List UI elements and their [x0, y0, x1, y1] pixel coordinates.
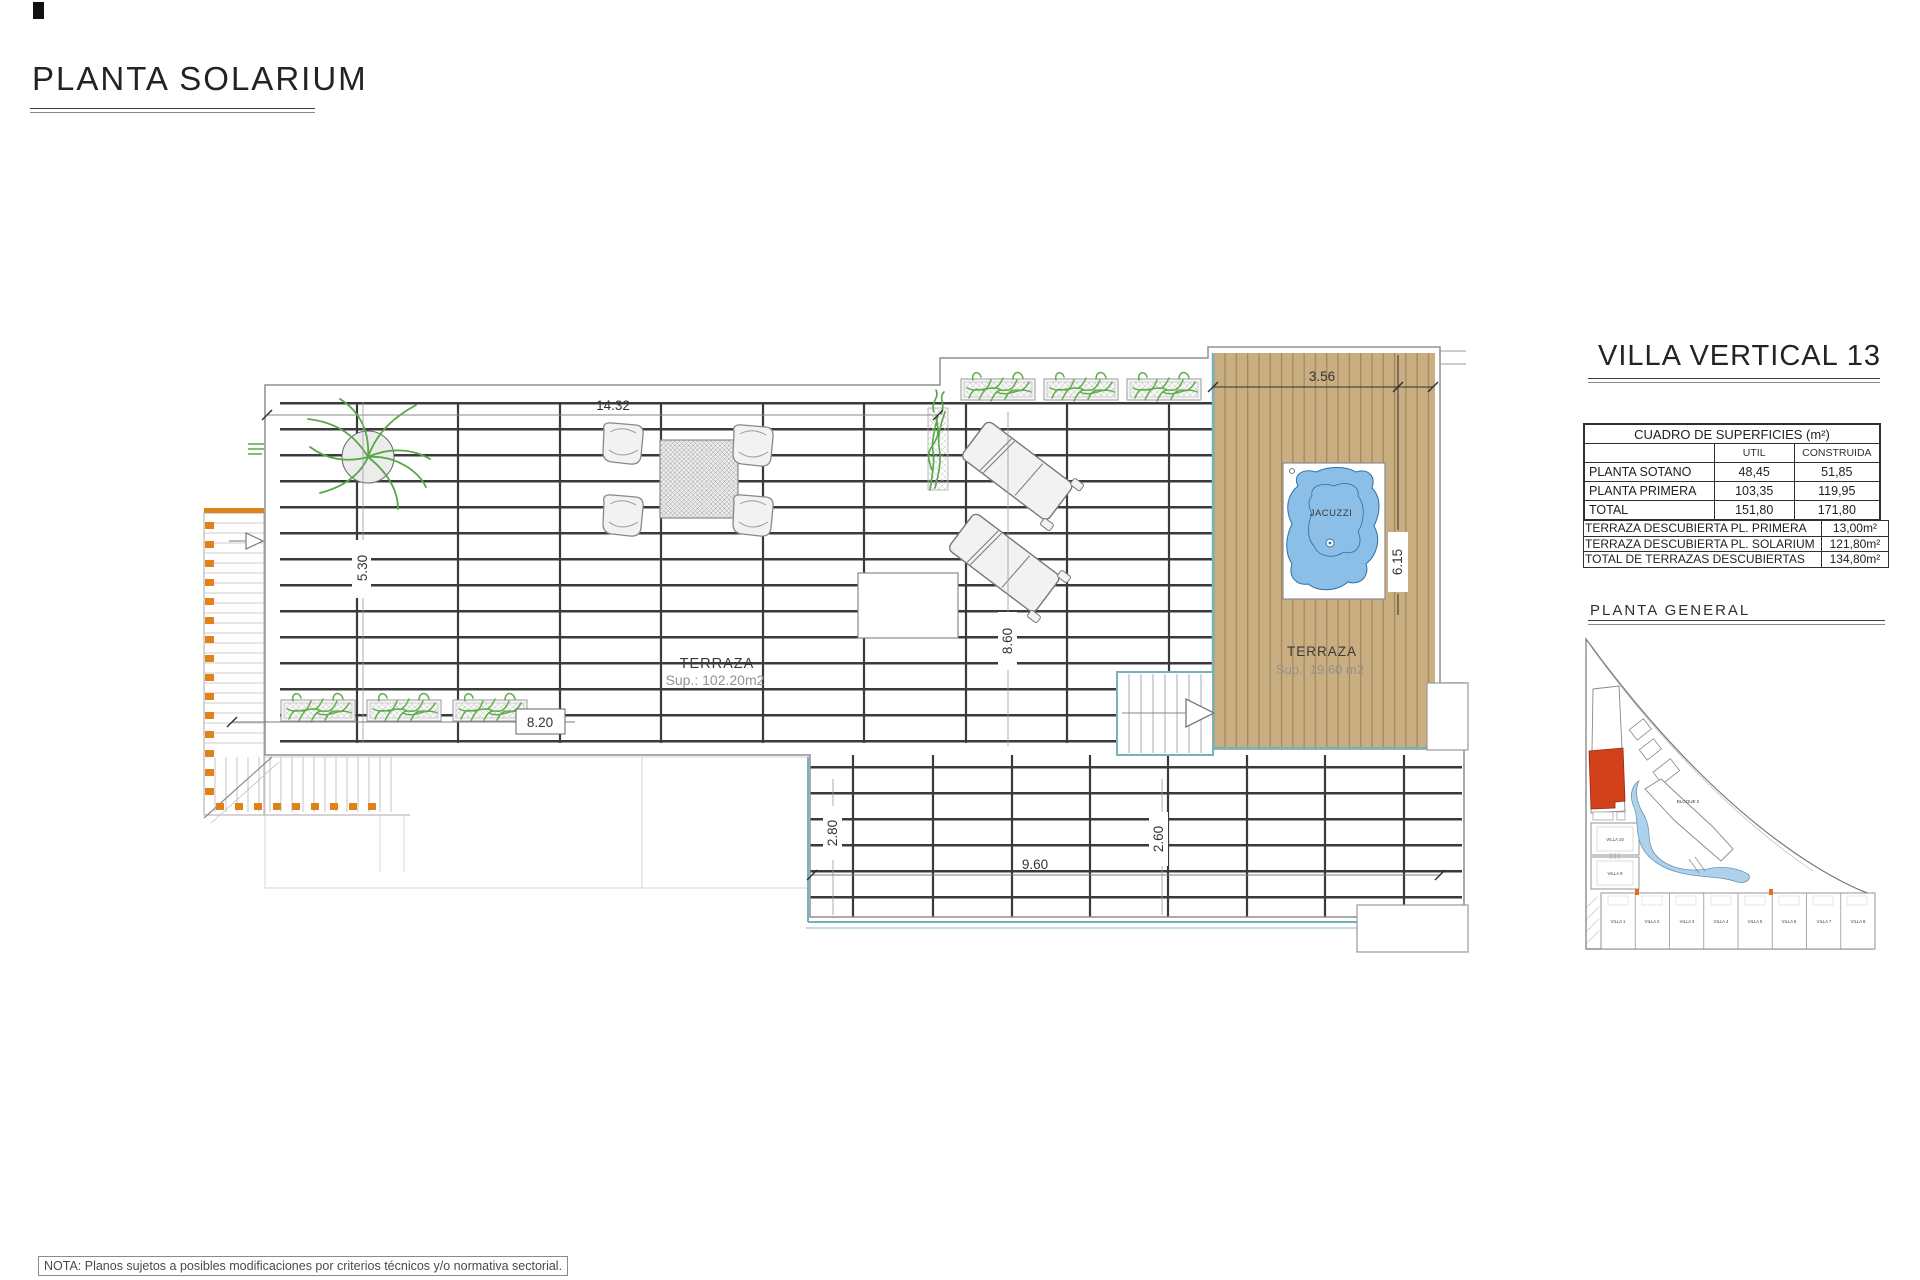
floor-plan: JACUZZI	[150, 330, 1510, 980]
stairs-left	[204, 508, 264, 815]
terrace-deck-area: Sup.: 19.60 m2	[1276, 662, 1364, 677]
dim-planter-width: 8.20	[527, 715, 553, 730]
chair	[603, 495, 643, 536]
site-villa-label: VILLA 2	[1645, 919, 1660, 924]
corner-mark	[33, 2, 44, 19]
villa-title-underline	[1588, 378, 1880, 383]
chair	[733, 495, 773, 536]
terrace-deck-label: TERRAZA	[1287, 644, 1357, 659]
site-villa-row: VILLA 1 VILLA 2 VILLA 3 VILLA 4 VILLA 5 …	[1601, 889, 1875, 949]
surfaces-table: CUADRO DE SUPERFICIES (m²) UTIL CONSTRUI…	[1583, 423, 1881, 521]
surfaces-table-title: CUADRO DE SUPERFICIES (m²)	[1584, 424, 1880, 444]
dim-deck-width: 3.56	[1309, 369, 1335, 384]
table-row: PLANTA PRIMERA 103,35 119,95	[1584, 482, 1880, 501]
page-title: PLANTA SOLARIUM	[32, 60, 368, 98]
site-villa-label: VILLA 3	[1680, 919, 1695, 924]
roof-opening	[858, 573, 958, 638]
site-highlight-villa	[1589, 748, 1625, 809]
dim-lower-left-height: 2.80	[825, 820, 840, 846]
dim-top-width: 14.32	[596, 398, 630, 413]
dim-lower-width: 9.60	[1022, 857, 1048, 872]
chair	[733, 425, 773, 466]
terrace-main-area: Sup.: 102.20m2	[666, 672, 765, 688]
dim-lower-right-height: 2.60	[1151, 826, 1166, 852]
site-villa-10-label: VILLA 10	[1606, 837, 1624, 842]
site-villa-label: VILLA 1	[1611, 919, 1626, 924]
notch-right	[1427, 683, 1468, 750]
villa-title: VILLA VERTICAL 13	[1598, 340, 1881, 373]
table-row: TERRAZA DESCUBIERTA PL. PRIMERA 13,00m²	[1584, 521, 1889, 537]
site-plan-title: PLANTA GENERAL	[1590, 602, 1750, 619]
site-villa-base	[1593, 812, 1625, 820]
table-row: PLANTA SOTANO 48,45 51,85	[1584, 463, 1880, 482]
site-villa-label: VILLA 4	[1714, 919, 1729, 924]
terrace-main-label: TERRAZA	[680, 656, 755, 672]
notch-bottom-right	[1357, 905, 1468, 952]
table-row: TERRAZA DESCUBIERTA PL. SOLARIUM 121,80m…	[1584, 536, 1889, 552]
site-villa-label: VILLA 5	[1748, 919, 1763, 924]
col-construida: CONSTRUIDA	[1794, 444, 1880, 463]
page-title-underline	[30, 108, 315, 113]
site-villa-label: VILLA 8	[1851, 919, 1866, 924]
jacuzzi: JACUZZI	[1283, 463, 1385, 599]
terraces-table: TERRAZA DESCUBIERTA PL. PRIMERA 13,00m² …	[1583, 520, 1889, 568]
site-villa-label: VILLA 6	[1782, 919, 1797, 924]
note-box: NOTA: Planos sujetos a posibles modifica…	[38, 1256, 568, 1276]
lower-floor-outline	[265, 757, 808, 888]
drawing-sheet: PLANTA SOLARIUM	[0, 0, 1920, 1280]
lower-terrace	[810, 755, 1462, 917]
jacuzzi-label: JACUZZI	[1310, 508, 1353, 519]
site-villa-label: VILLA 7	[1817, 919, 1832, 924]
dim-mid-height: 8.60	[1000, 628, 1015, 654]
site-villa-9-label: VILLA 9	[1607, 871, 1623, 876]
stairs-to-deck	[1117, 672, 1214, 755]
site-plan: BLOQUE 2 VILLA 10 VILLA 9	[1583, 631, 1895, 963]
deck-ticks	[1440, 351, 1466, 364]
col-util: UTIL	[1714, 444, 1794, 463]
planters-top	[961, 372, 1201, 401]
dim-left-height: 5.30	[355, 555, 370, 581]
chair	[603, 423, 643, 464]
table-row: TOTAL DE TERRAZAS DESCUBIERTAS 134,80m²	[1584, 552, 1889, 568]
table-row: TOTAL 151,80 171,80	[1584, 501, 1880, 521]
dim-deck-height: 6.15	[1390, 549, 1405, 575]
site-bloque-2-label: BLOQUE 2	[1677, 799, 1700, 804]
site-plan-underline	[1588, 620, 1885, 625]
